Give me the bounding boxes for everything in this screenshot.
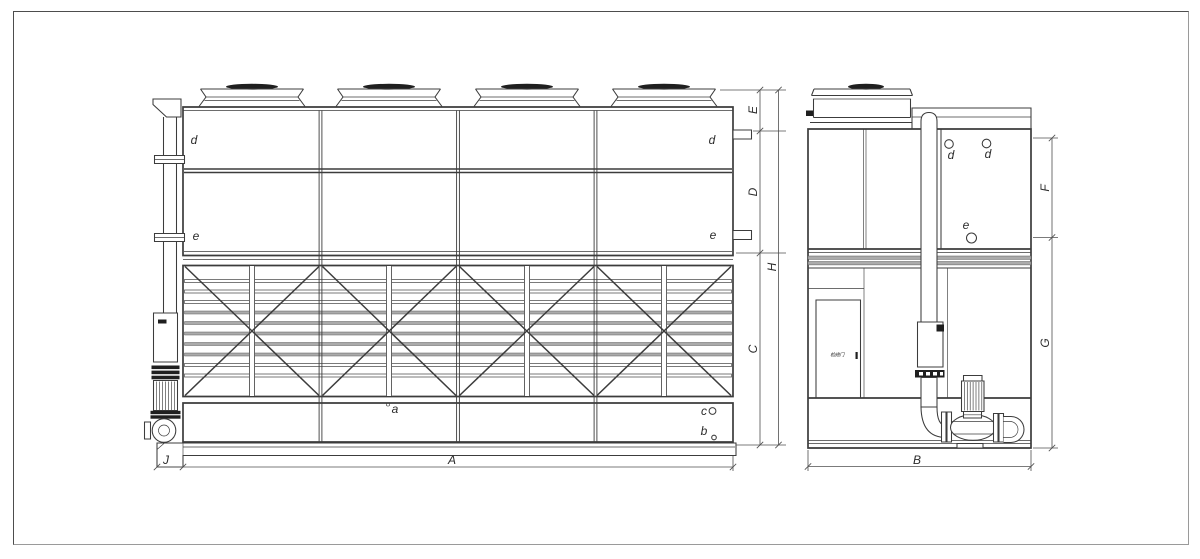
- outlet-stub-right: [733, 231, 752, 240]
- label-part-d-side-2: d: [985, 148, 992, 160]
- label-part-d-side-1: d: [948, 149, 955, 161]
- label-part-e-front-left: e: [193, 230, 200, 242]
- label-part-a: a: [392, 403, 399, 415]
- water-basin: [183, 403, 733, 442]
- label-part-e-front-right: e: [710, 229, 717, 241]
- label-dim-h: H: [766, 263, 778, 272]
- upper-casing: [183, 107, 733, 256]
- front-view: [145, 84, 752, 467]
- left-riser-and-pump: [145, 99, 185, 442]
- sensor-box: [937, 325, 945, 332]
- label-dim-f: F: [1039, 184, 1051, 191]
- label-dim-g: G: [1039, 338, 1051, 347]
- label-dim-e: E: [747, 106, 759, 114]
- drawing-canvas: d e d e a c b d d e A J B E D C H F G 检修…: [0, 0, 1200, 559]
- louver-lattice: [183, 260, 733, 404]
- access-door: [816, 300, 861, 398]
- fan-motor-stub: [806, 111, 813, 117]
- fan-cowl-side: [806, 84, 913, 123]
- label-dim-j: J: [163, 454, 169, 466]
- fan-cowls: [199, 84, 717, 107]
- pump-volute-front: [152, 419, 176, 443]
- cooling-tower-two-view-drawing: [0, 0, 1200, 559]
- label-part-c: c: [701, 405, 707, 417]
- label-part-d-front-left: d: [191, 134, 198, 146]
- inlet-stub-right: [733, 130, 752, 139]
- label-part-d-front-right: d: [709, 134, 716, 146]
- label-access-door: 检修门: [830, 354, 844, 359]
- pump-volute-side: [951, 415, 996, 441]
- label-dim-a: A: [448, 454, 456, 466]
- base-frame: [157, 443, 736, 467]
- label-dim-c: C: [747, 345, 759, 354]
- label-dim-b: B: [913, 454, 921, 466]
- label-dim-d: D: [747, 188, 759, 197]
- pump-motor-side: [962, 381, 985, 412]
- side-view: [806, 84, 1031, 448]
- label-part-b: b: [701, 425, 708, 437]
- door-handle: [856, 352, 858, 359]
- label-part-e-side: e: [963, 219, 970, 231]
